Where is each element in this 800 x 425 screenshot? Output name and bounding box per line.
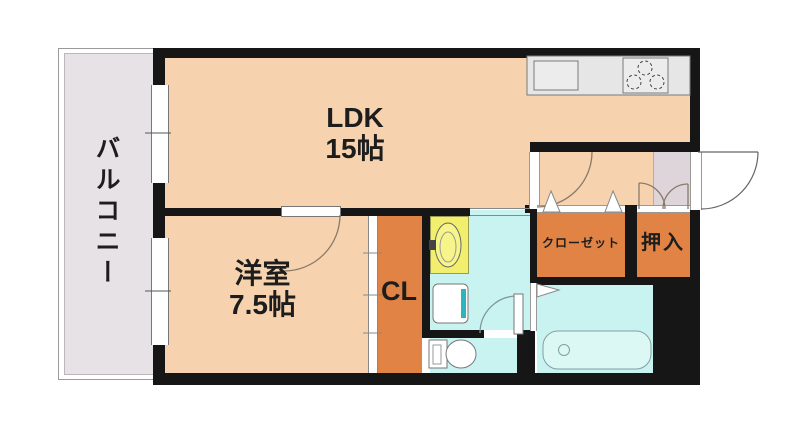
ldk-size: 15帖	[325, 133, 384, 164]
washbasin-icon	[429, 223, 461, 267]
plan-linework	[0, 0, 800, 425]
bath-folding-door-icon	[537, 284, 559, 297]
window-tick	[145, 133, 171, 291]
door-swing-icon	[284, 152, 688, 271]
western-room-label: 洋室 7.5帖	[200, 258, 325, 321]
bathtub-icon	[543, 331, 651, 369]
ldk-name: LDK	[326, 102, 384, 133]
western-room-name: 洋室	[234, 258, 290, 289]
ldk-label: LDK 15帖	[295, 102, 415, 165]
oshiire-label: 押入	[633, 232, 693, 254]
closet-label: クローゼット	[537, 237, 625, 250]
front-door-swing-icon	[698, 152, 758, 209]
stove-icon	[623, 58, 668, 93]
toilet-door-swing-icon	[480, 294, 523, 334]
balcony-label: バルコニー	[90, 112, 120, 312]
washing-machine-icon	[433, 284, 468, 323]
western-room-size: 7.5帖	[229, 289, 296, 320]
cl-label: CL	[374, 276, 424, 306]
bifold-door-icon	[543, 191, 622, 212]
kitchen-sink-icon	[534, 61, 578, 90]
toilet-icon	[429, 340, 476, 368]
kitchen-counter	[527, 56, 690, 95]
floor-plan: バルコニー LDK 15帖 洋室 7.5帖 CL クローゼット 押入	[0, 0, 800, 425]
